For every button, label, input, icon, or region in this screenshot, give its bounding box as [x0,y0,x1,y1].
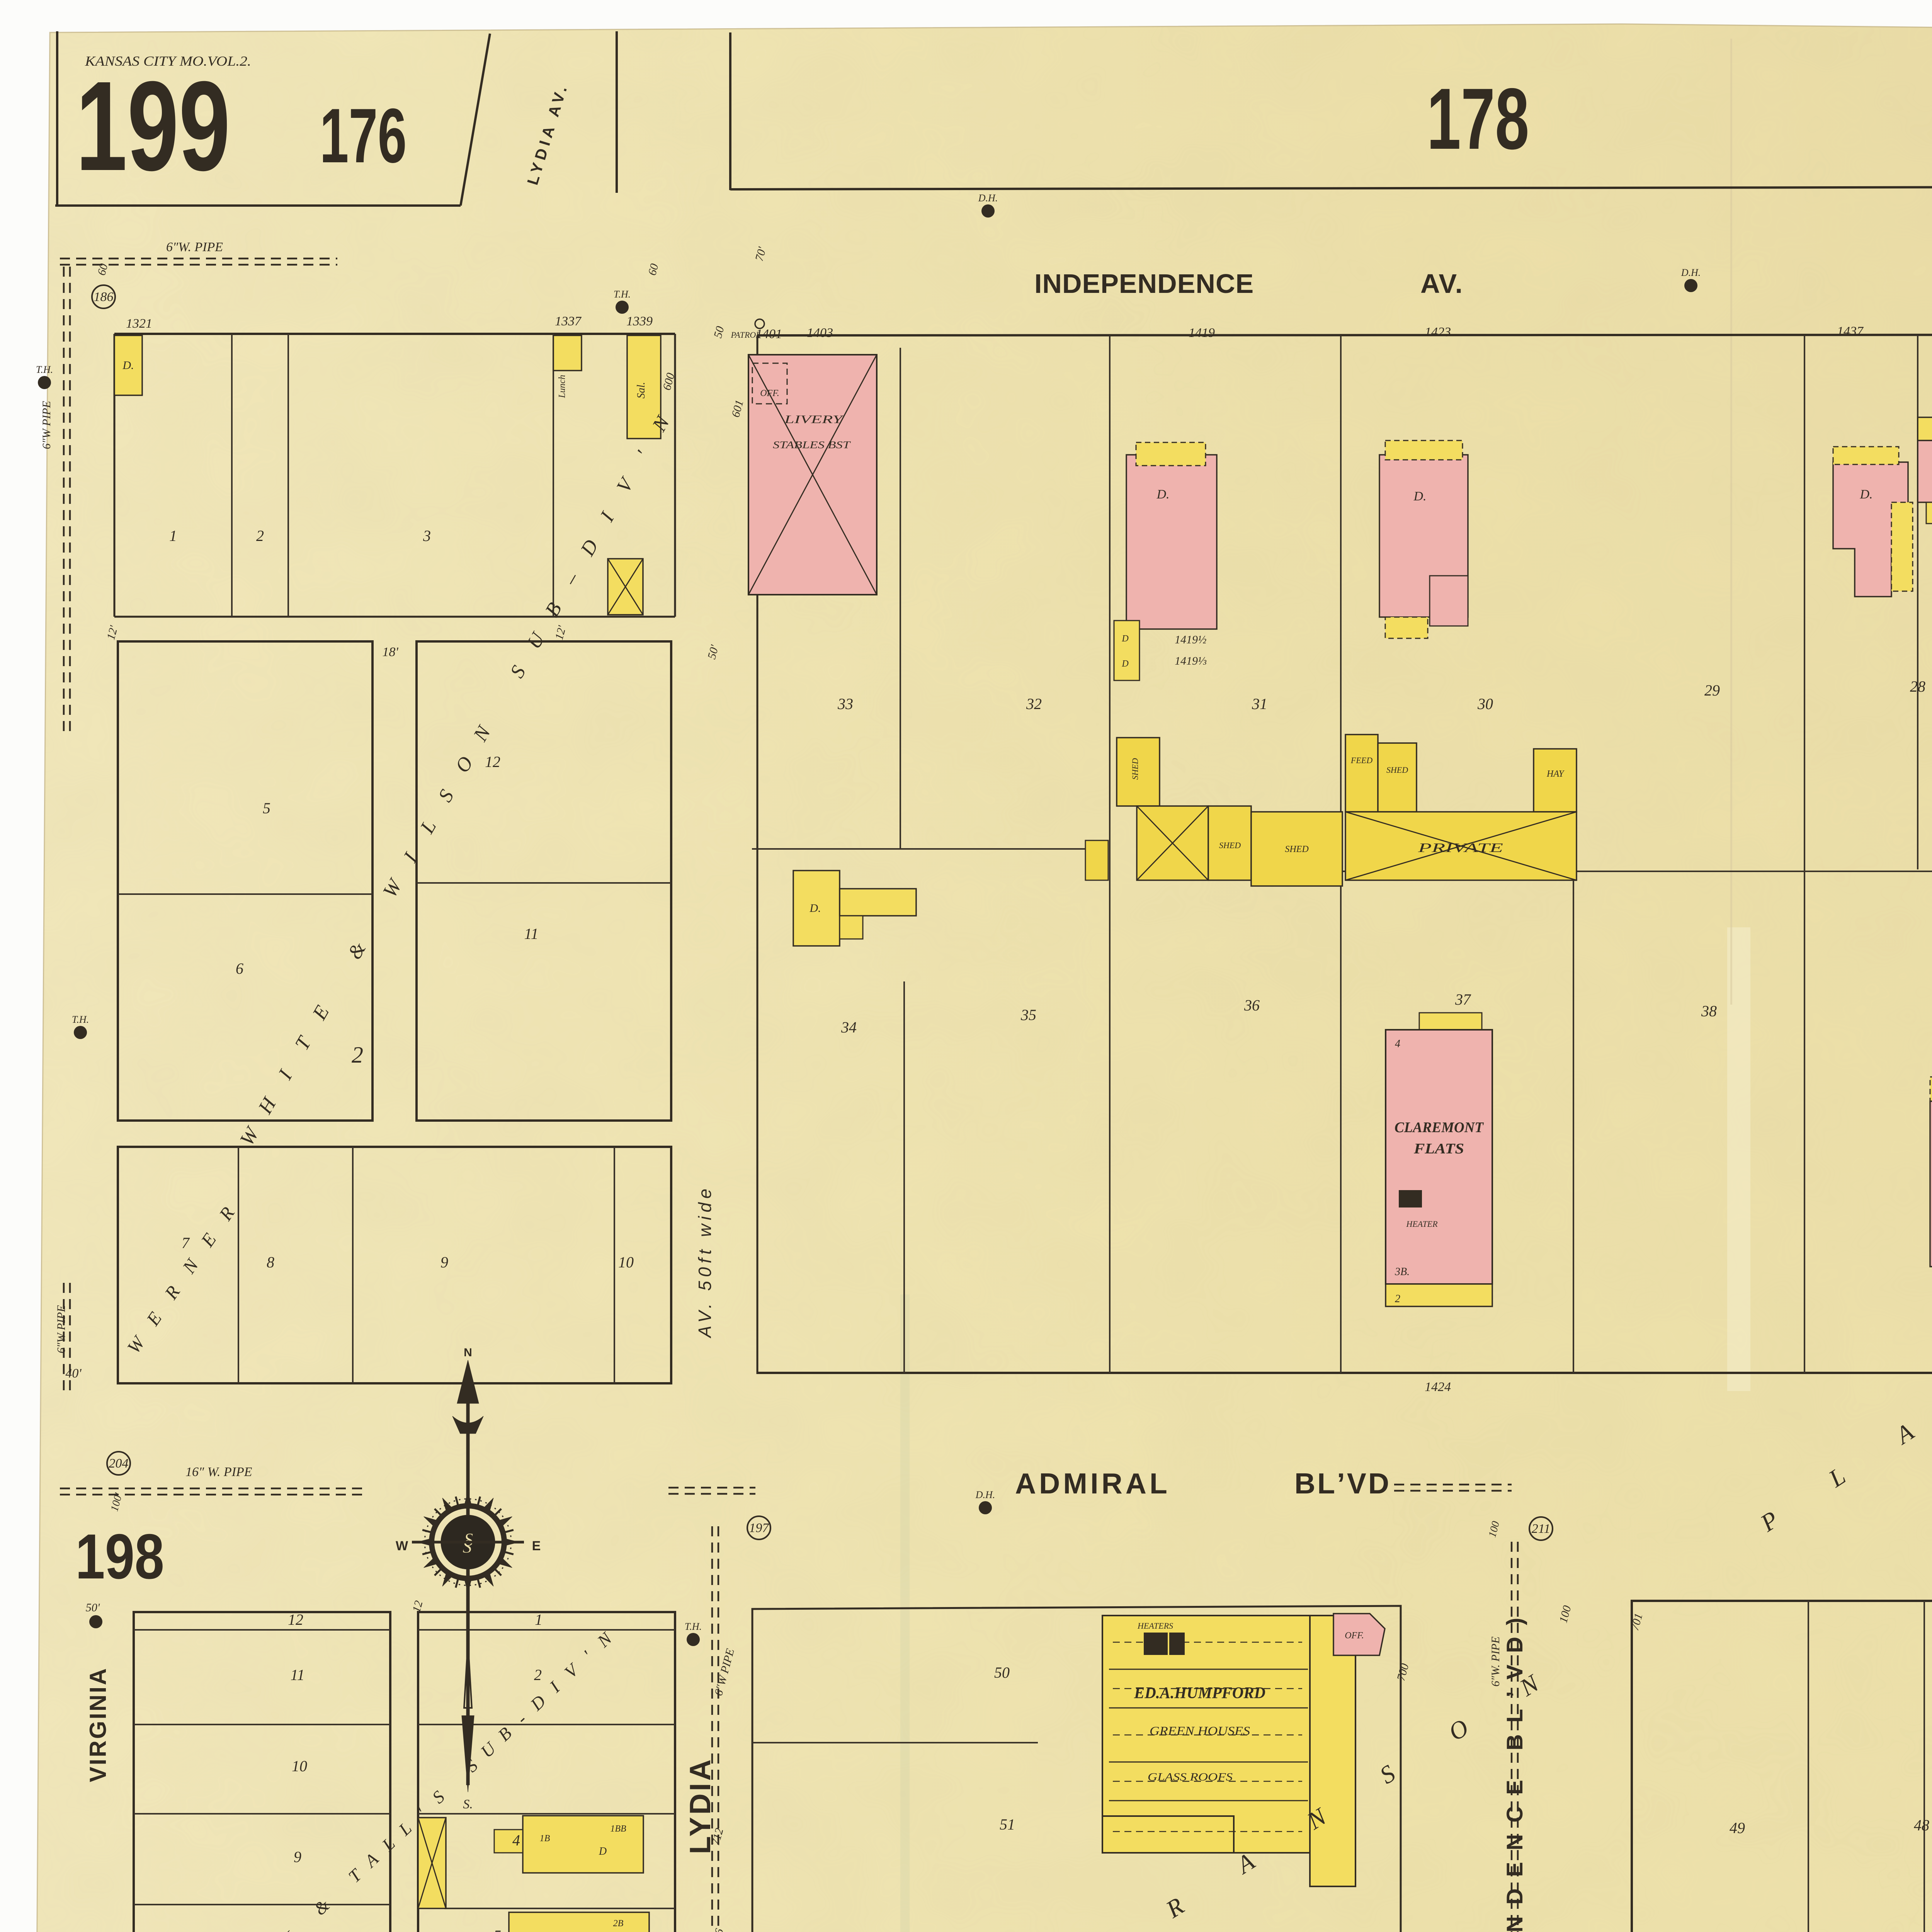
svg-text:PRIVATE: PRIVATE [1417,841,1503,855]
svg-text:4: 4 [512,1832,520,1849]
svg-text:Sal.: Sal. [635,382,647,399]
svg-text:1: 1 [169,527,177,544]
svg-text:OFF.: OFF. [760,388,779,398]
svg-text:SHED: SHED [1219,840,1241,850]
svg-text:12: 12 [288,1611,303,1628]
svg-text:36: 36 [1244,997,1260,1014]
svg-text:AV.: AV. [1420,269,1463,299]
svg-text:40': 40' [65,1366,82,1381]
svg-text:9: 9 [294,1848,301,1866]
svg-text:1: 1 [535,1611,543,1628]
svg-text:1321: 1321 [126,316,152,331]
svg-text:N: N [464,1346,472,1359]
svg-text:4: 4 [1395,1038,1400,1050]
svg-text:D.: D. [1413,489,1426,503]
svg-text:2: 2 [256,527,264,544]
svg-text:6: 6 [236,960,243,977]
svg-text:35: 35 [1020,1006,1036,1024]
svg-text:1419⅓: 1419⅓ [1175,655,1207,667]
svg-text:49: 49 [1730,1819,1745,1837]
svg-text:30: 30 [1477,695,1493,713]
svg-text:INDEPENDENCE: INDEPENDENCE [1034,269,1254,299]
svg-text:33: 33 [837,695,853,713]
svg-text:178: 178 [1427,70,1529,167]
svg-text:SHED: SHED [1130,758,1140,780]
svg-text:T.H.: T.H. [72,1014,89,1025]
svg-text:5: 5 [493,1927,501,1932]
svg-text:51: 51 [1000,1816,1015,1833]
svg-text:T.H.: T.H. [614,289,631,300]
svg-text:HAY: HAY [1546,769,1565,779]
svg-text:FLATS: FLATS [1413,1141,1464,1157]
svg-text:SHED: SHED [1285,844,1308,854]
svg-text:16″ W. PIPE: 16″ W. PIPE [185,1465,252,1479]
svg-text:37: 37 [1455,991,1471,1008]
svg-text:2B: 2B [613,1918,624,1929]
svg-text:D.H.: D.H. [1681,267,1701,278]
svg-text:D: D [1121,634,1128,644]
svg-text:2: 2 [1395,1293,1400,1305]
svg-text:6″W. PIPE: 6″W. PIPE [1489,1636,1502,1687]
svg-text:10: 10 [618,1253,634,1271]
svg-text:S.: S. [463,1797,473,1811]
svg-text:7: 7 [182,1234,190,1252]
svg-text:34: 34 [841,1019,857,1036]
svg-text:31: 31 [1252,695,1267,713]
svg-text:6″W PIPE: 6″W PIPE [40,401,53,449]
svg-text:8: 8 [267,1253,274,1271]
svg-text:29: 29 [1704,682,1720,699]
svg-text:211: 211 [1532,1522,1550,1536]
svg-text:48: 48 [1914,1816,1929,1834]
svg-text:PATROL: PATROL [730,330,760,340]
svg-text:FEED: FEED [1350,755,1372,765]
svg-text:E: E [532,1539,541,1553]
svg-text:50': 50' [86,1601,100,1614]
svg-text:198: 198 [75,1521,164,1592]
svg-text:BLʼVD: BLʼVD [1294,1467,1391,1500]
svg-text:T.H.: T.H. [36,364,53,375]
svg-text:ADMIRAL: ADMIRAL [1015,1467,1170,1500]
svg-text:D.H.: D.H. [975,1489,995,1500]
svg-text:CLAREMONT: CLAREMONT [1395,1119,1484,1136]
svg-text:1437: 1437 [1837,324,1864,338]
svg-text:D.: D. [1859,487,1872,502]
svg-text:1419: 1419 [1189,326,1215,340]
svg-text:VIRGINIA: VIRGINIA [85,1667,111,1782]
svg-text:186: 186 [94,290,114,304]
svg-text:38: 38 [1701,1002,1717,1020]
svg-text:3: 3 [423,527,431,544]
svg-text:1BB: 1BB [610,1824,626,1834]
svg-text:D: D [1121,659,1128,669]
svg-text:197: 197 [749,1521,770,1535]
svg-text:1423: 1423 [1425,325,1451,339]
svg-text:204: 204 [109,1456,129,1471]
svg-text:HEATER: HEATER [1406,1219,1438,1229]
svg-text:LIVERY: LIVERY [784,413,844,426]
svg-text:11: 11 [290,1666,304,1684]
svg-text:6″W. PIPE: 6″W. PIPE [166,240,223,254]
svg-text:STABLES BST: STABLES BST [773,439,851,451]
svg-text:T.H.: T.H. [685,1621,702,1632]
svg-text:D.: D. [122,359,134,372]
svg-text:18': 18' [382,645,398,659]
svg-text:HEATERS: HEATERS [1137,1621,1173,1631]
svg-text:2: 2 [352,1042,363,1068]
svg-text:199: 199 [76,54,230,197]
svg-text:1B: 1B [540,1833,550,1844]
svg-text:1419½: 1419½ [1175,633,1207,646]
svg-text:6″W PIPE: 6″W PIPE [55,1305,68,1354]
svg-text:28: 28 [1910,678,1925,695]
svg-text:11: 11 [524,925,538,942]
svg-text:5: 5 [263,799,270,817]
svg-text:D: D [599,1845,607,1857]
svg-text:176: 176 [320,93,407,179]
svg-text:32: 32 [1026,695,1042,713]
svg-text:9: 9 [440,1253,448,1271]
svg-text:GREEN HOUSES: GREEN HOUSES [1150,1724,1250,1738]
svg-text:KANSAS CITY MO.VOL.2.: KANSAS CITY MO.VOL.2. [85,53,251,69]
svg-text:1339: 1339 [626,314,653,328]
svg-text:W: W [396,1539,408,1553]
svg-text:10: 10 [292,1757,307,1775]
svg-text:1403: 1403 [807,326,833,340]
svg-text:1337: 1337 [555,314,582,328]
svg-text:3B.: 3B. [1395,1266,1410,1278]
svg-text:D.: D. [1156,487,1169,502]
svg-text:ED.A.HUMPFORD: ED.A.HUMPFORD [1134,1684,1265,1702]
svg-text:1424: 1424 [1425,1380,1451,1394]
svg-text:SHED: SHED [1386,765,1408,775]
svg-text:2: 2 [534,1666,542,1684]
svg-text:12: 12 [485,753,500,770]
svg-text:THE PASEO (INDEPENDENCE BLʼ: THE PASEO (INDEPENDENCE BLʼVD) [1502,1606,1527,1932]
svg-text:OFF.: OFF. [1345,1631,1364,1641]
svg-text:AV. 50ft wide: AV. 50ft wide [695,1185,715,1338]
svg-text:D.: D. [809,902,821,915]
svg-text:Lunch: Lunch [557,375,567,398]
svg-text:D.H.: D.H. [978,192,998,204]
svg-text:50: 50 [994,1664,1010,1681]
svg-text:GLASS ROOFS: GLASS ROOFS [1148,1771,1233,1783]
